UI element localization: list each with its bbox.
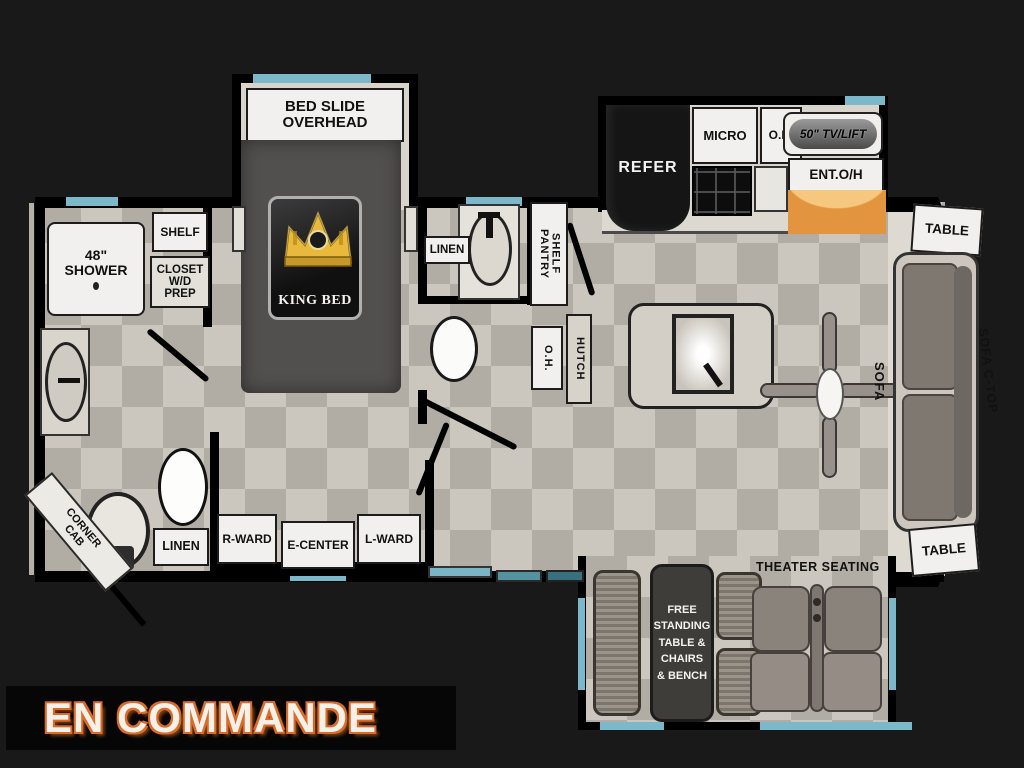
tv-lift-label: 50" TV/LIFT (789, 119, 877, 149)
sofa-back (954, 266, 972, 518)
crown-icon (279, 207, 357, 273)
theater-seat-back (824, 586, 882, 652)
refrigerator: REFER (606, 105, 690, 231)
floorplan-screenshot: BED SLIDE OVERHEAD KING BED R-WARD E-CEN… (0, 0, 1024, 768)
window-bed-slide (253, 74, 371, 83)
shower-text: SHOWER (65, 263, 128, 278)
fs-line3: TABLE & (659, 635, 706, 652)
entry-step (546, 570, 584, 582)
shower-size: 48" (85, 248, 107, 263)
fan-blade (838, 383, 900, 398)
fan-blade (822, 312, 837, 374)
cup-holder (813, 614, 821, 622)
linen-mid-label: LINEN (424, 236, 470, 264)
oh-mid-label: O.H. (531, 326, 563, 390)
front-cap-edge (29, 203, 34, 575)
sofa-cushion (902, 263, 958, 390)
bed-slide-line1: BED SLIDE (285, 99, 365, 115)
nightstand-left (232, 206, 246, 252)
closet-line2: W/D PREP (152, 276, 208, 300)
r-ward-label: R-WARD (217, 514, 277, 564)
fs-line4: CHAIRS (661, 651, 703, 668)
fs-line5: & BENCH (657, 668, 707, 685)
stove (692, 166, 752, 216)
bench (593, 570, 641, 716)
bath-faucet (58, 378, 80, 383)
fs-line2: STANDING (654, 618, 711, 635)
cup-holder (813, 598, 821, 606)
shower-drain (93, 282, 99, 290)
hutch-label: HUTCH (566, 314, 592, 404)
nightstand-right (404, 206, 418, 252)
l-ward-label: L-WARD (357, 514, 421, 564)
island-sink (672, 314, 734, 394)
theater-seat-cushion (750, 652, 810, 712)
microwave-label: MICRO (692, 107, 758, 164)
table-rear-top-label: TABLE (910, 204, 983, 257)
wall-hallway (418, 390, 427, 424)
sofa-label: SOFA (872, 362, 887, 401)
theater-seat-back (752, 586, 810, 652)
table-rear-bottom-label: TABLE (908, 523, 980, 577)
window-dinette-right (889, 598, 896, 690)
closet-label: CLOSET W/D PREP (150, 256, 210, 308)
e-center-label: E-CENTER (281, 521, 355, 569)
ceiling-fan-hub (816, 368, 844, 420)
counter-cell (754, 166, 788, 212)
window-dinette-bottom-1 (600, 722, 664, 730)
mid-bath-toilet (430, 316, 478, 382)
theater-seating-label: THEATER SEATING (756, 560, 880, 574)
entry-step (428, 566, 492, 578)
pantry-line1: PANTRY (537, 229, 549, 279)
king-bed-label: KING BED (278, 293, 352, 309)
pantry-line2: SHELF (549, 233, 561, 274)
ent-oh-label: ENT.O/H (788, 158, 884, 192)
window-dinette-bottom-2 (760, 722, 912, 730)
window-dinette-left (578, 598, 585, 690)
pantry-shelf-label: PANTRY SHELF (530, 202, 568, 306)
free-standing-table: FREE STANDING TABLE & CHAIRS & BENCH (650, 564, 714, 722)
status-banner-text: EN COMMANDE (44, 694, 377, 742)
entry-door (788, 190, 886, 234)
window-kitchen-slide (845, 96, 885, 105)
shower-label: 48" SHOWER (47, 222, 145, 316)
closet-line1: CLOSET (157, 264, 204, 276)
tv-lift: 50" TV/LIFT (783, 112, 883, 156)
fs-line1: FREE (667, 602, 696, 619)
bed-slide-line2: OVERHEAD (282, 115, 367, 131)
window-front (66, 197, 118, 206)
fan-blade (760, 383, 822, 398)
shelf-label: SHELF (152, 212, 208, 252)
bed-slide-label: BED SLIDE OVERHEAD (246, 88, 404, 142)
linen-front-label: LINEN (153, 528, 209, 566)
theater-seat-cushion (822, 652, 882, 712)
mid-bath-faucet-bar (478, 212, 500, 218)
fan-blade (822, 416, 837, 478)
sofa-cushion (902, 394, 958, 521)
entry-step (496, 570, 542, 582)
status-banner: EN COMMANDE (6, 686, 456, 750)
king-bed-badge: KING BED (268, 196, 362, 320)
bath-fixture (158, 448, 208, 526)
